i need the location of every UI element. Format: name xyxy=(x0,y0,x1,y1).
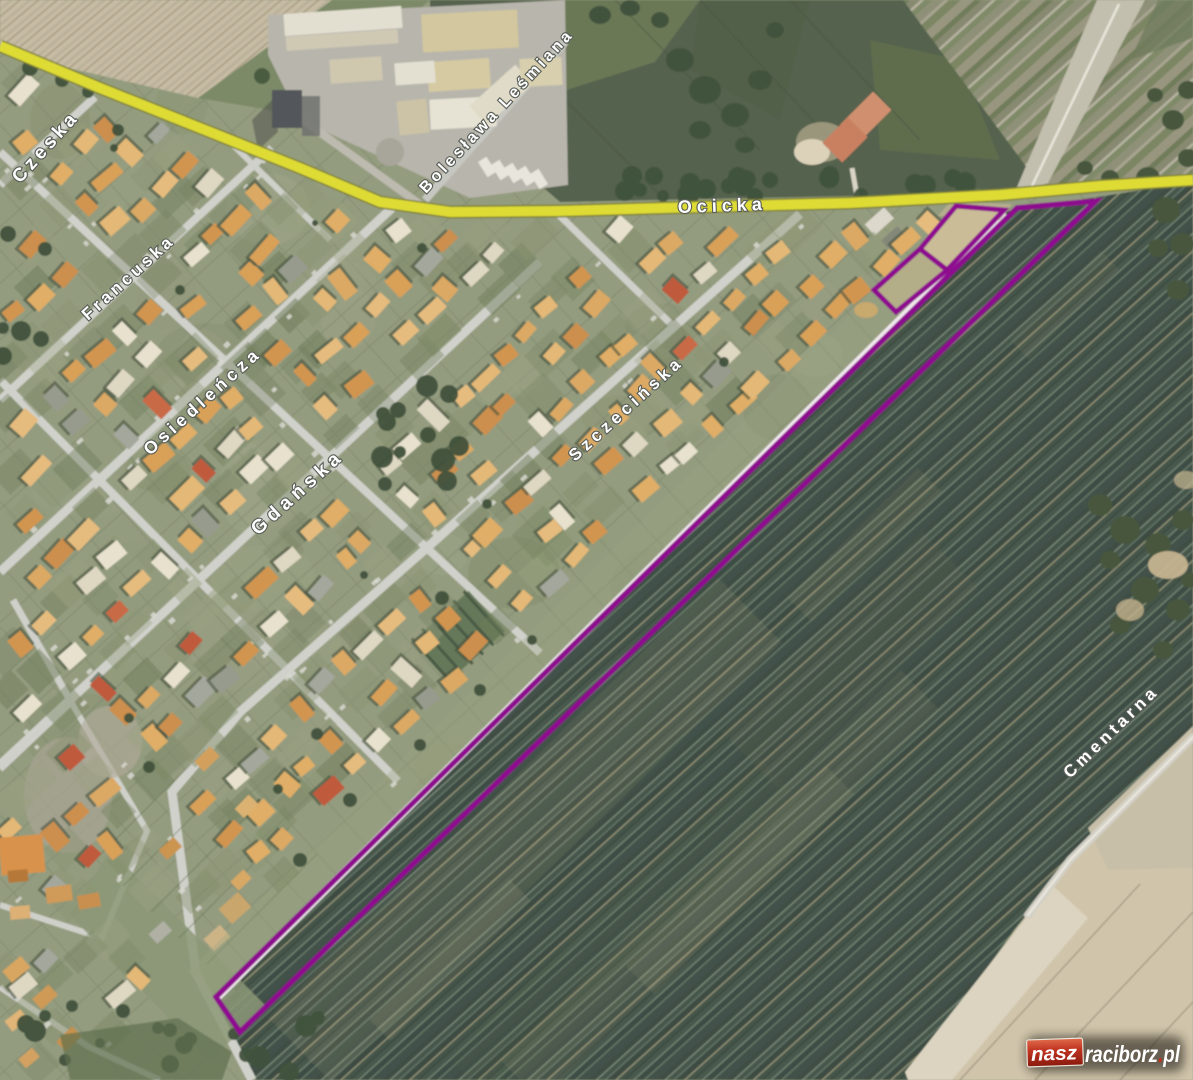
svg-text:raciborz.pl: raciborz.pl xyxy=(1085,1041,1180,1067)
svg-text:nasz: nasz xyxy=(1031,1042,1078,1066)
svg-text:Ocicka: Ocicka xyxy=(677,194,767,217)
